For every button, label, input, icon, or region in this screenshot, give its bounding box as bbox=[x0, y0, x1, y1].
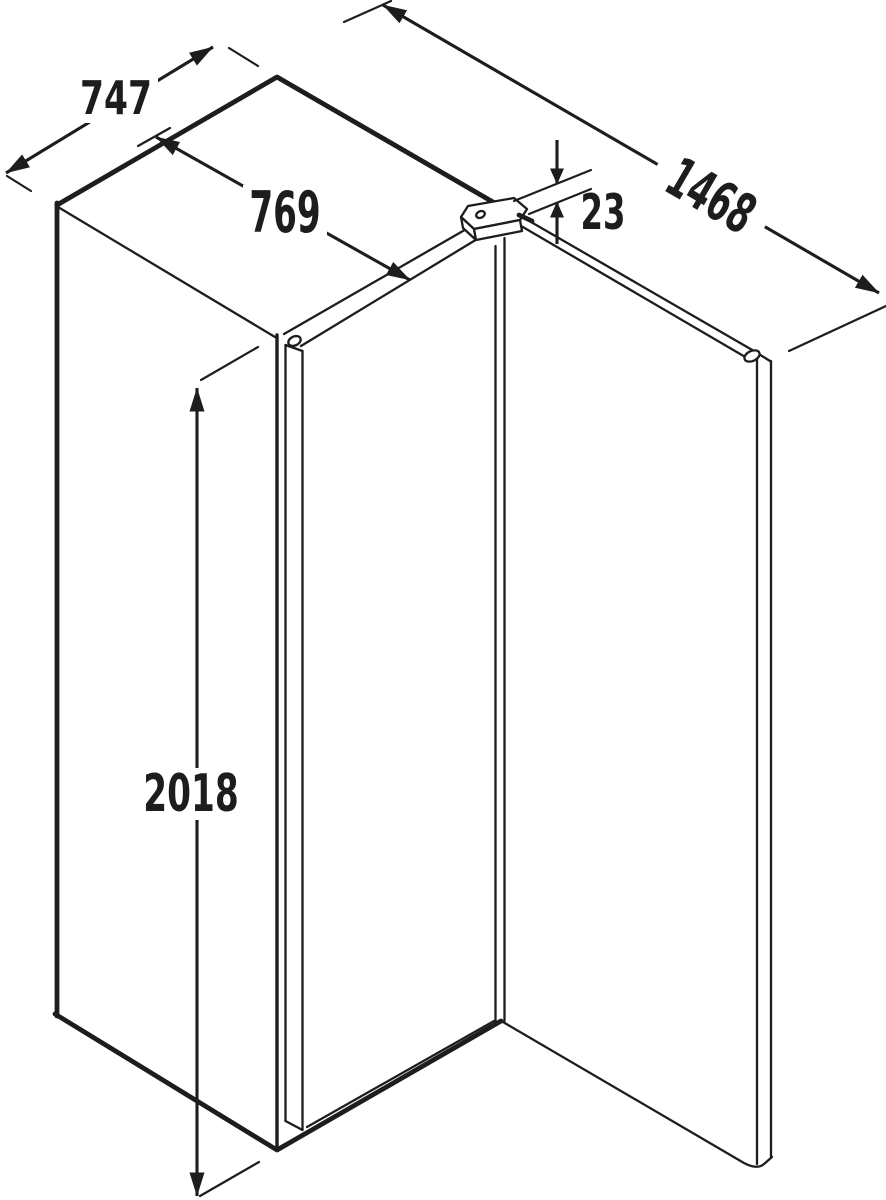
dim-hinge-clearance-label: 23 bbox=[581, 183, 626, 241]
dim-height-value: 2018 bbox=[143, 764, 239, 824]
dim-height-label: 2018 bbox=[138, 764, 244, 824]
dim-depth-extension-tick-left bbox=[7, 176, 31, 191]
dim-depth-label: 747 bbox=[74, 71, 158, 125]
closed-door-bottom-cap bbox=[286, 1121, 303, 1130]
open-door-hinge-hole bbox=[743, 348, 762, 364]
dim-height-extension-tick-top bbox=[201, 347, 258, 380]
dim-depth-extension-tick-right bbox=[229, 48, 258, 66]
dim-depth-with-door-value: 769 bbox=[249, 180, 320, 247]
dim-depth: 747 bbox=[6, 47, 258, 191]
dim-hinge-clearance-extension-upper bbox=[514, 170, 591, 201]
open-door-top-inner-line bbox=[516, 223, 747, 358]
dim-depth-with-door-label: 769 bbox=[243, 180, 327, 247]
closed-door-top-inner-line bbox=[301, 227, 497, 346]
dim-depth-door-open: 1468 bbox=[344, 1, 886, 351]
open-door-bottom-edge bbox=[503, 1022, 772, 1167]
cabinet-top-left-face-edge bbox=[58, 207, 275, 337]
dimension-drawing-page: 747 769 1468 23 bbox=[0, 0, 886, 1200]
closed-door-edge bbox=[284, 216, 497, 1130]
dim-height-extension-tick-bottom bbox=[200, 1162, 259, 1196]
top-hinge bbox=[461, 198, 532, 240]
dim-depth-with-door: 769 bbox=[138, 128, 410, 280]
closed-door-bottom-edge-line bbox=[307, 1021, 494, 1127]
dim-height: 2018 bbox=[138, 347, 259, 1196]
dim-depth-door-open-label: 1468 bbox=[641, 137, 781, 255]
cabinet-dimension-drawing: 747 769 1468 23 bbox=[0, 0, 886, 1200]
dim-depth-door-open-extension-line bbox=[789, 306, 886, 351]
dim-hinge-clearance-value: 23 bbox=[581, 183, 626, 241]
dim-depth-value: 747 bbox=[80, 71, 152, 125]
dim-hinge-clearance: 23 bbox=[514, 140, 626, 244]
open-door bbox=[503, 211, 772, 1167]
